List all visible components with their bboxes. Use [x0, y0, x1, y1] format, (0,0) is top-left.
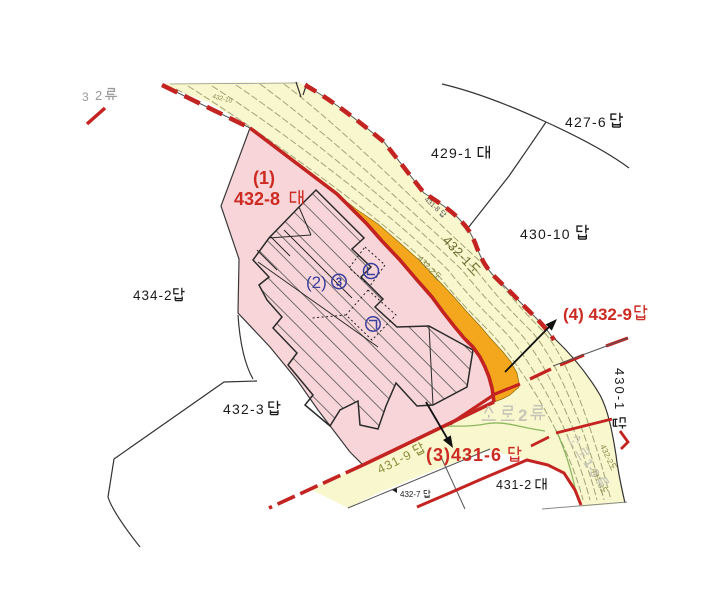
svg-text:(2): (2) — [306, 273, 327, 292]
svg-text:(1): (1) — [253, 168, 275, 188]
svg-text:432-3: 432-3 — [223, 401, 265, 417]
svg-text:431-2: 431-2 — [496, 478, 532, 492]
svg-text:2: 2 — [518, 406, 527, 425]
svg-text:434-2: 434-2 — [133, 288, 173, 303]
svg-text:429-1: 429-1 — [431, 145, 473, 161]
svg-text:432-8: 432-8 — [234, 189, 280, 209]
svg-text:432-7: 432-7 — [400, 490, 421, 499]
svg-text:430-1: 430-1 — [612, 368, 627, 411]
svg-text:3: 3 — [336, 277, 342, 289]
svg-text:430-10: 430-10 — [520, 226, 571, 242]
svg-text:(4) 432-9: (4) 432-9 — [563, 305, 632, 324]
svg-text:(3)431-6: (3)431-6 — [426, 445, 502, 465]
svg-text:2: 2 — [95, 88, 102, 103]
svg-text:427-6: 427-6 — [565, 114, 607, 130]
svg-text:3: 3 — [82, 90, 89, 104]
